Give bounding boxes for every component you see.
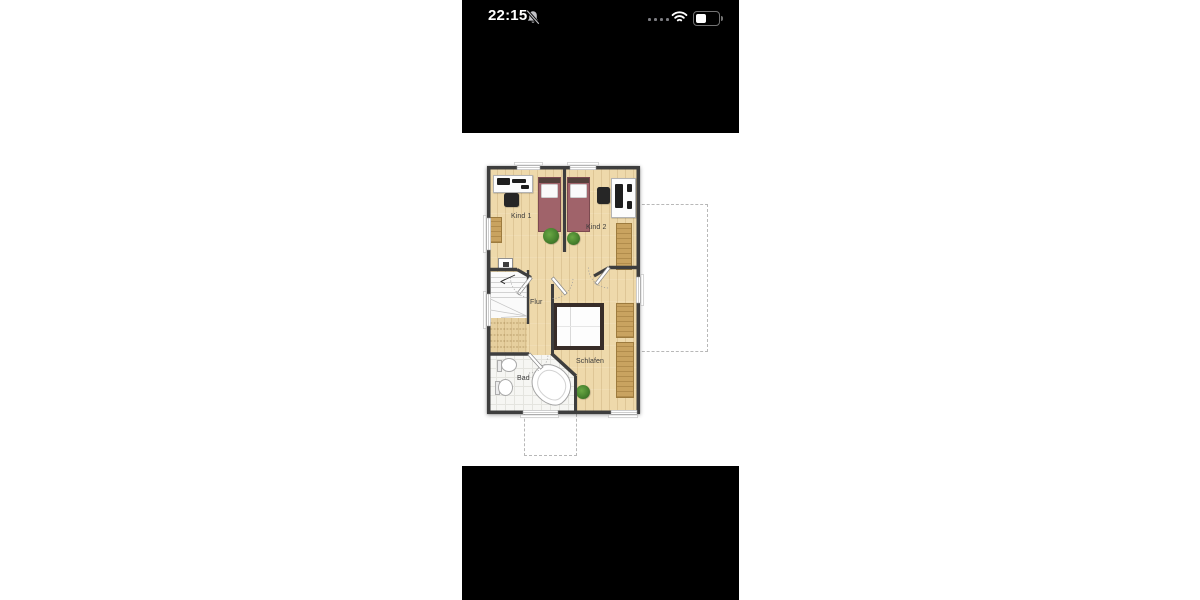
walls-overlay	[481, 160, 646, 420]
status-time: 22:15	[488, 7, 527, 24]
door-leaves	[517, 267, 610, 370]
room-label-bad: Bad	[517, 375, 530, 382]
bell-slash-icon	[526, 10, 540, 25]
battery-nub	[721, 16, 723, 21]
roof-projection-outline-right	[637, 204, 708, 352]
battery-level-fill	[696, 14, 706, 24]
photo-content[interactable]: Kind 1 Kind 2 Flur Schlafen Bad	[462, 133, 739, 466]
top-letterbox-bar: 22:15	[462, 0, 739, 133]
stair-treads-dashed	[491, 323, 527, 347]
battery-icon	[693, 11, 720, 26]
phone-screenshot: 22:15	[462, 0, 739, 600]
room-label-schlafen: Schlafen	[576, 358, 604, 365]
room-label-flur: Flur	[530, 299, 542, 306]
wifi-icon	[671, 11, 688, 23]
bottom-letterbox-bar	[462, 466, 739, 600]
floorplan-image[interactable]: Kind 1 Kind 2 Flur Schlafen Bad	[487, 166, 640, 414]
stair-treads	[491, 278, 527, 318]
room-label-kind2: Kind 2	[586, 224, 606, 231]
room-label-kind1: Kind 1	[511, 213, 531, 220]
cellular-signal-dots-icon	[648, 18, 669, 21]
